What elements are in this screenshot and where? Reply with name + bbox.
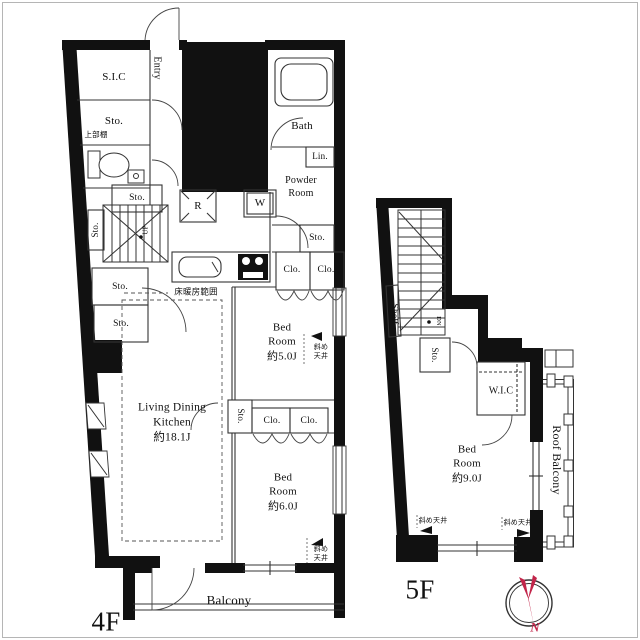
room-label-powder-room: Powder Room	[285, 174, 317, 200]
room-label-closet-4: Clo.	[301, 415, 318, 427]
floor5-partitions	[386, 285, 543, 556]
room-label-storage-6: Sto.	[309, 232, 325, 244]
stairs-up-label: UP	[141, 225, 150, 234]
note-upper-shelf: 上部棚	[84, 130, 107, 140]
compass-icon	[506, 575, 552, 626]
room-label-storage-3: Sto.	[90, 222, 102, 237]
floor-label-5f: 5F	[406, 572, 435, 607]
floor5-walls	[376, 198, 543, 562]
toilet-icon	[88, 151, 144, 183]
room-label-linen: Lin.	[312, 151, 328, 163]
room-label-closet-3: Clo.	[264, 415, 281, 427]
kitchen-stove-icon	[212, 254, 268, 280]
room-label-storage-4: Sto.	[112, 281, 128, 293]
sloped-ceiling-marks-4f	[304, 332, 323, 563]
room-label-bath: Bath	[291, 119, 313, 133]
room-label-roof-balcony: Roof Balcony	[548, 425, 564, 494]
bathtub-icon	[275, 58, 333, 106]
room-label-storage-7: Sto.	[234, 408, 246, 423]
floorplan-canvas: S.I.C Entry Sto. 上部棚 Sto. Sto. UP Sto. S…	[0, 0, 640, 640]
room-label-storage-1: Sto.	[105, 114, 123, 128]
note-shelf: Shelf	[388, 303, 400, 324]
room-label-storage-5f: Sto.	[428, 347, 440, 362]
room-label-bedroom-9j: Bed Room 約9.0J	[452, 443, 482, 486]
stairs-down-label: DN	[434, 316, 442, 326]
room-label-closet-1: Clo.	[284, 264, 301, 276]
room-label-bedroom-5j: Bed Room 約5.0J	[267, 321, 297, 364]
floor-label-4f: 4F	[92, 604, 121, 639]
compass-north-label: N	[530, 620, 540, 637]
room-label-entry: Entry	[151, 56, 164, 79]
fridge-label: R	[194, 199, 202, 213]
stairs-up-icon	[103, 205, 168, 262]
room-label-wic: W.I.C	[489, 385, 514, 398]
room-label-sic: S.I.C	[102, 70, 126, 84]
room-label-storage-2: Sto.	[129, 192, 145, 204]
note-floor-heating: 床暖房範囲	[174, 286, 218, 297]
note-sloped-ceiling-3: 斜め天井	[419, 516, 448, 525]
room-label-storage-5: Sto.	[113, 318, 129, 330]
room-label-bedroom-6j: Bed Room 約6.0J	[268, 471, 298, 514]
room-label-ldk: Living Dining Kitchen 約18.1J	[138, 401, 206, 446]
note-sloped-ceiling-2: 斜め 天井	[314, 545, 328, 563]
note-sloped-ceiling-1: 斜め 天井	[314, 343, 328, 361]
washer-label: W	[255, 196, 266, 210]
note-sloped-ceiling-4: 斜め天井	[504, 518, 533, 527]
room-label-closet-2: Clo.	[318, 264, 335, 276]
room-label-balcony: Balcony	[207, 593, 252, 610]
